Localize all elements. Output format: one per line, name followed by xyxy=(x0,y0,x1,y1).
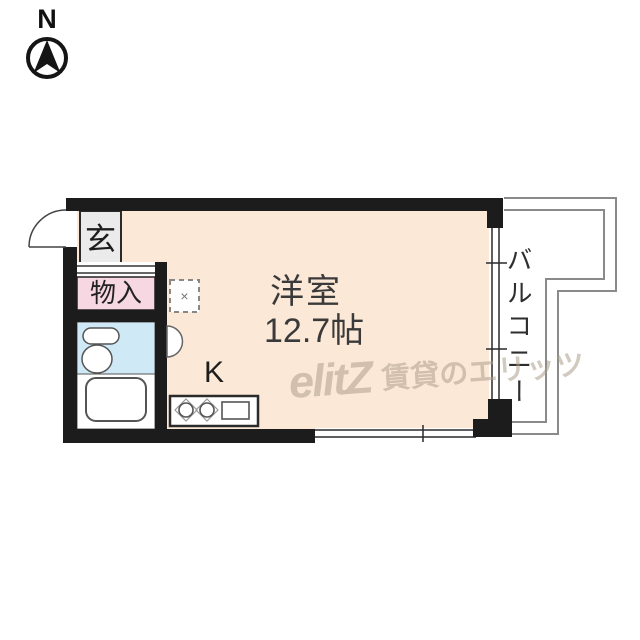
kitchen-counter xyxy=(170,396,258,426)
stove-burner-icon xyxy=(200,403,214,417)
storage-label: 物入 xyxy=(77,277,155,310)
compass-icon xyxy=(28,39,66,77)
bathtub-icon xyxy=(86,378,146,421)
watermark-logo: elitZ xyxy=(287,351,373,409)
wall-top-right-block xyxy=(487,198,503,228)
entrance-door-swing xyxy=(29,210,66,247)
wall-bottom-right-step xyxy=(473,419,512,437)
kitchen-label: K xyxy=(197,356,231,390)
wall-inner-horizontal xyxy=(77,310,167,322)
room-size-label: 12.7帖 xyxy=(264,303,364,352)
wall-left xyxy=(63,247,77,443)
entrance-label: 玄 xyxy=(80,211,121,268)
stove-burner-icon xyxy=(179,403,193,417)
wall-bottom xyxy=(63,429,315,443)
kitchen-sink-icon xyxy=(222,402,249,419)
watermark-text: 賃貸のエリッツ xyxy=(380,341,585,397)
compass-north-label: N xyxy=(34,4,60,35)
wall-top xyxy=(66,198,503,211)
floorplan-image: N 玄 物入 × K 洋室 12.7帖 バルコニー elitZ 賃貸のエリッツ xyxy=(0,0,640,640)
washer-mark: × xyxy=(170,280,199,312)
wall-inner-vertical xyxy=(155,262,167,429)
